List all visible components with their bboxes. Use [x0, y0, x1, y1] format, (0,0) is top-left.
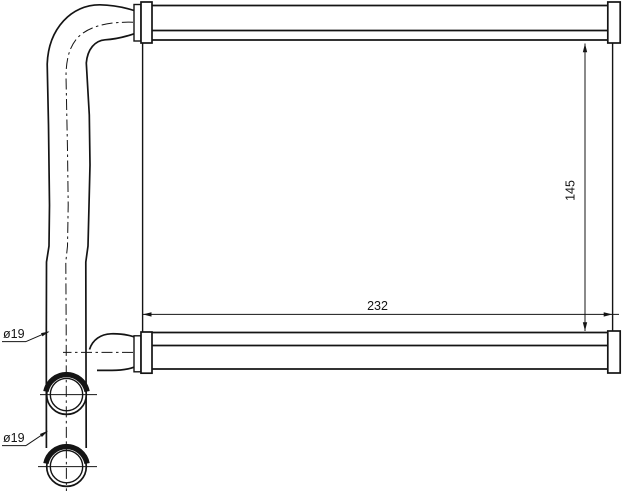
height-dimension-label: 145 — [564, 180, 578, 201]
dimension-core-height: 145 — [564, 44, 588, 332]
top-collar-fitting — [141, 2, 152, 43]
width-arrow-left — [143, 312, 152, 316]
width-arrow-right — [604, 312, 613, 316]
heater-core-technical-drawing: 232 145 ø19 ø19 — [0, 0, 622, 493]
height-arrow-bottom — [583, 322, 587, 331]
dimension-core-width: 232 — [143, 299, 619, 317]
top-end-cap — [608, 2, 620, 43]
drawing-page: 232 145 ø19 ø19 — [0, 0, 622, 493]
bottom-collar-ring — [134, 336, 141, 372]
inlet-diameter-label: ø19 — [3, 431, 25, 445]
bottom-collar-fitting — [141, 332, 152, 373]
callout-inlet-diameter: ø19 — [2, 431, 48, 446]
width-dimension-label: 232 — [367, 299, 388, 313]
bottom-end-cap — [608, 331, 620, 373]
outlet-callout-arrow — [41, 331, 50, 336]
bottom-tank — [134, 331, 620, 373]
height-arrow-top — [583, 44, 587, 53]
top-collar-ring — [134, 5, 141, 42]
centerlines — [63, 22, 133, 491]
outlet-hose-bottom-edge — [97, 367, 134, 370]
core-body — [143, 43, 613, 333]
inlet-hose-centerline — [66, 22, 133, 491]
inlet-hose-inner-edge — [86, 34, 134, 448]
top-tank — [134, 2, 620, 43]
outlet-pipe-end — [40, 375, 97, 415]
callout-outlet-diameter: ø19 — [2, 327, 50, 342]
inlet-pipe-end — [38, 447, 97, 487]
outlet-diameter-label: ø19 — [3, 327, 25, 341]
outlet-hose-top-edge — [90, 334, 135, 350]
